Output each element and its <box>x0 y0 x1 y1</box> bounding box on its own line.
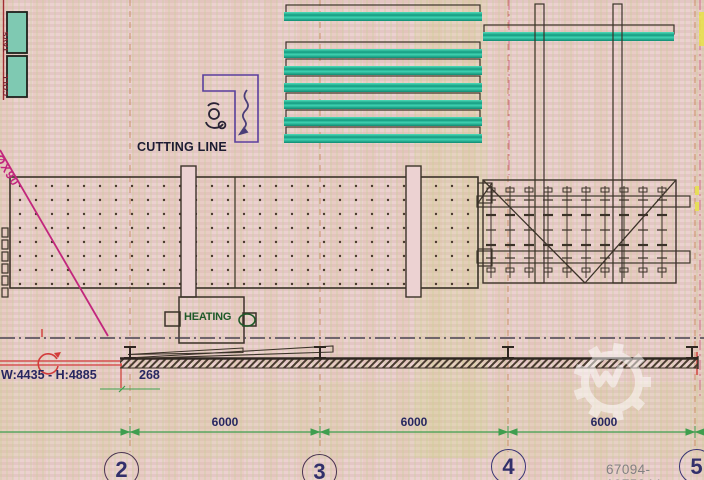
watermark-id-text: 67094-1975044 <box>606 462 704 480</box>
span-dimension-label: 6000 <box>401 415 428 429</box>
cad-drawing-photo: CUTTING LINE HEATING W:4435 - H:4885 268… <box>0 0 704 480</box>
grid-bubble-2: 2 <box>104 452 139 480</box>
cutting-line-label: CUTTING LINE <box>137 140 227 154</box>
operator-station-outline <box>203 75 258 142</box>
conveyor-roller-bars <box>284 5 482 143</box>
span-dimension-label: 6000 <box>591 415 618 429</box>
cad-linework <box>0 0 704 480</box>
left-chain-scale <box>2 228 8 297</box>
span-dimension-label: 6000 <box>212 415 239 429</box>
squiggle-arrow-icon <box>240 90 248 134</box>
conveyor-bar-right <box>483 25 674 41</box>
pallet-box-label: TAVS <box>1 31 10 52</box>
cutting-table-band <box>10 166 492 297</box>
roller-shafts <box>486 186 667 278</box>
pallet-box-label: COLL <box>1 74 10 96</box>
offset-dimension-label: 268 <box>139 368 160 382</box>
heating-label: HEATING <box>184 311 231 323</box>
operator-icon <box>206 103 225 128</box>
gear-watermark-icon <box>574 343 651 422</box>
roller-truss-section <box>477 180 690 283</box>
grid-bubble-4: 4 <box>491 449 526 480</box>
window-size-annotation: W:4435 - H:4885 <box>1 368 97 382</box>
